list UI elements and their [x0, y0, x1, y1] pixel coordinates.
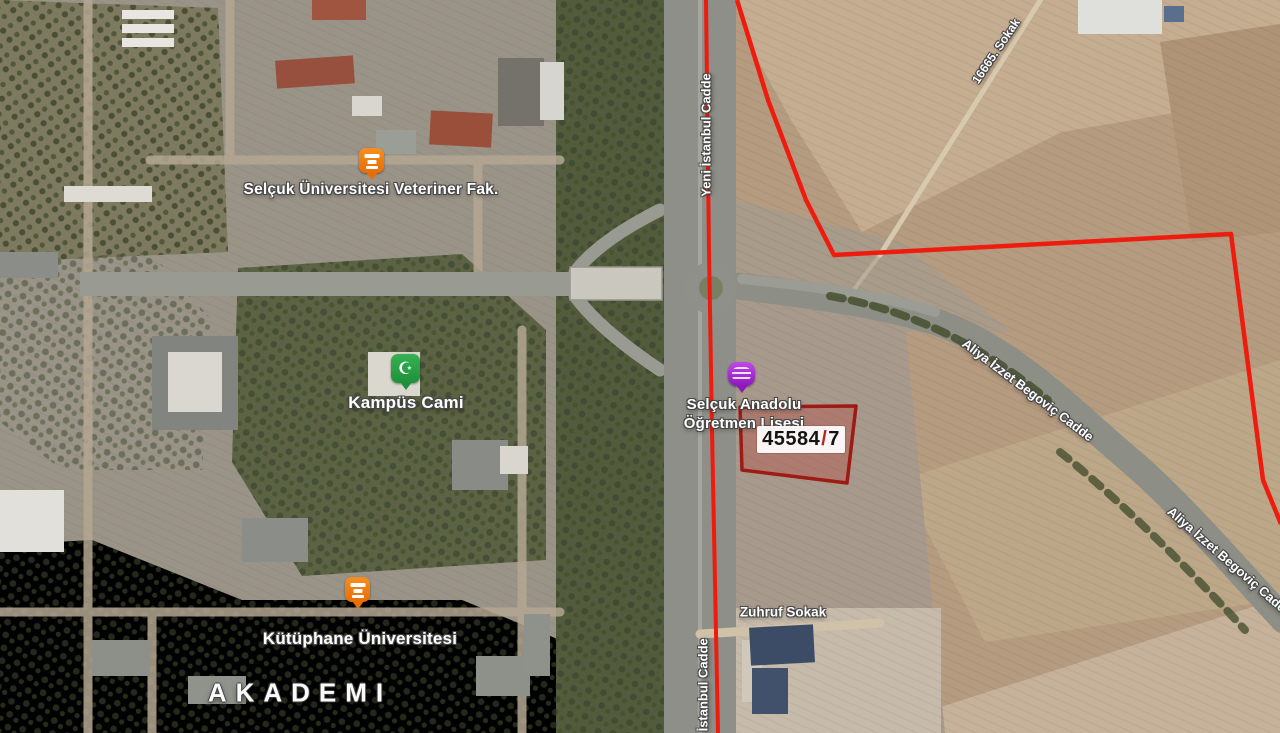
- poi-label-veteriner[interactable]: Selçuk Üniversitesi Veteriner Fak.: [244, 181, 499, 199]
- poi-label-kutuphane[interactable]: Kütüphane Üniversitesi: [263, 629, 457, 649]
- crescent-star-glyph: ☪: [398, 359, 413, 379]
- poi-marker-kutuphane[interactable]: [345, 577, 370, 602]
- road-label-yeni-istanbul-bottom: Yeni İstanbul Cadde: [696, 638, 711, 733]
- parcel-block-number: 45584: [762, 428, 820, 451]
- satellite-map[interactable]: ☪ Selçuk Üniversitesi Veteriner Fak. Kam…: [0, 0, 1280, 733]
- poi-marker-cami[interactable]: ☪: [391, 354, 420, 383]
- district-label-akademi: AKADEMI: [208, 678, 392, 709]
- school-icon: [728, 362, 755, 386]
- poi-marker-lise[interactable]: [728, 362, 755, 386]
- road-label-yeni-istanbul-top: Yeni İstanbul Cadde: [699, 73, 714, 197]
- parcel-number-badge[interactable]: 45584/7: [757, 426, 845, 453]
- satellite-canvas[interactable]: [0, 0, 1280, 733]
- parcel-lot-number: 7: [828, 428, 840, 451]
- university-icon: [345, 577, 370, 602]
- road-label-zuhruf-sokak: Zuhruf Sokak: [740, 605, 826, 620]
- poi-marker-veteriner[interactable]: [359, 148, 384, 173]
- mosque-icon: ☪: [391, 354, 420, 383]
- overpass-bridge: [570, 267, 662, 300]
- university-icon: [359, 148, 384, 173]
- poi-label-lise-line1: Selçuk Anadolu: [684, 395, 805, 414]
- poi-label-cami[interactable]: Kampüs Cami: [348, 393, 464, 413]
- parcel-separator: /: [820, 428, 828, 451]
